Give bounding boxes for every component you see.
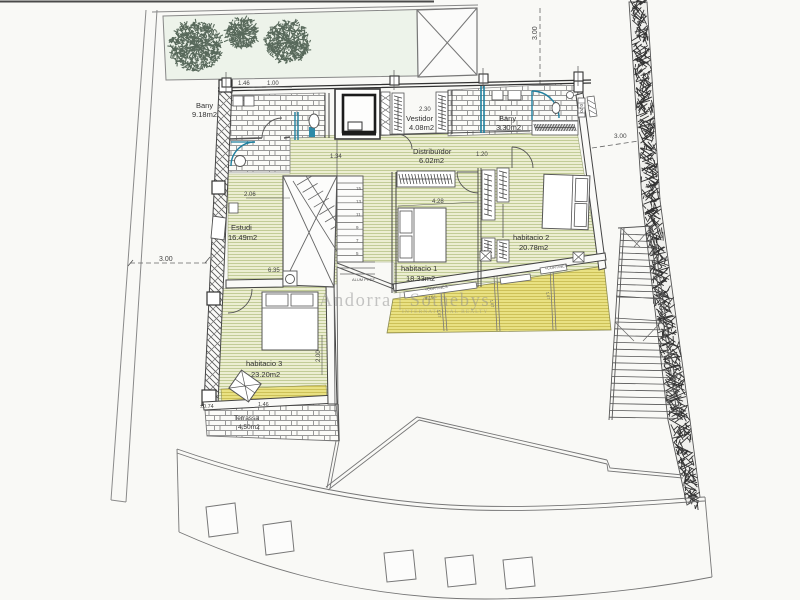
svg-text:2.30: 2.30 [419, 107, 431, 113]
svg-text:INTERNATIONAL REALTY: INTERNATIONAL REALTY [402, 309, 488, 315]
svg-text:3.00: 3.00 [159, 256, 173, 263]
svg-text:11: 11 [356, 212, 361, 217]
svg-text:1.46: 1.46 [258, 402, 269, 408]
svg-text:16.49m2: 16.49m2 [228, 233, 257, 242]
svg-text:2.00: 2.00 [316, 350, 322, 362]
svg-text:0.70: 0.70 [579, 104, 584, 113]
svg-text:4.50m2: 4.50m2 [238, 424, 260, 431]
svg-text:6.35: 6.35 [268, 268, 280, 274]
svg-text:9.18m2: 9.18m2 [192, 110, 217, 119]
svg-text:habitacio 3: habitacio 3 [246, 359, 282, 368]
svg-text:3.00: 3.00 [614, 133, 627, 140]
svg-text:Bany: Bany [499, 114, 516, 123]
svg-text:ALUM PREF: ALUM PREF [352, 277, 375, 282]
svg-text:3.30m2: 3.30m2 [496, 123, 521, 132]
svg-text:habitacio 1: habitacio 1 [401, 264, 437, 273]
svg-text:13: 13 [356, 199, 362, 204]
svg-text:±0.74: ±0.74 [200, 404, 214, 410]
svg-text:15: 15 [356, 186, 362, 191]
svg-text:1.00: 1.00 [267, 81, 279, 87]
svg-text:Terrassa: Terrassa [234, 415, 259, 422]
svg-text:habitacio 2: habitacio 2 [513, 233, 549, 242]
svg-text:4.28: 4.28 [432, 199, 444, 205]
svg-text:Andorra | Sothebys: Andorra | Sothebys [319, 291, 490, 311]
svg-text:Estudi: Estudi [231, 223, 252, 232]
svg-text:23.20m2: 23.20m2 [251, 370, 280, 379]
svg-text:6.02m2: 6.02m2 [419, 156, 444, 165]
svg-text:20.78m2: 20.78m2 [519, 243, 548, 252]
svg-text:Distribuïdor: Distribuïdor [413, 147, 452, 156]
svg-text:3.00: 3.00 [532, 26, 539, 40]
svg-text:Vestidor: Vestidor [406, 114, 434, 123]
svg-text:1.34: 1.34 [330, 154, 342, 160]
svg-text:4.08m2: 4.08m2 [409, 123, 434, 132]
svg-text:1.20: 1.20 [476, 152, 488, 158]
svg-text:2.06: 2.06 [244, 192, 256, 198]
svg-text:Bany: Bany [196, 101, 213, 110]
svg-text:1.46: 1.46 [238, 81, 250, 87]
svg-text:18.33m2: 18.33m2 [406, 274, 435, 283]
